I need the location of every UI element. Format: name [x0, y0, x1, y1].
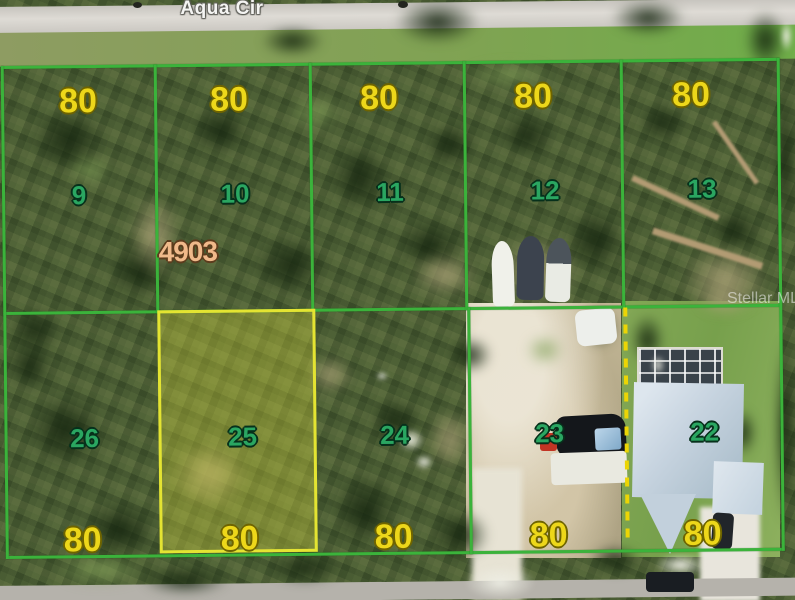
- lot24-number: 24: [380, 422, 409, 448]
- lot11-dimension: 80: [360, 81, 398, 115]
- boundary-line-middle: [3, 304, 782, 315]
- lot22-number: 22: [690, 418, 719, 444]
- boundary-lot11-12: [463, 61, 469, 310]
- lot26-dimension: 80: [64, 523, 102, 557]
- boundary-lot9-10: [154, 64, 160, 313]
- parcel-boundary-overlay: 80 80 80 80 80 9 10 11 12 13 4903 26 25 …: [0, 0, 795, 600]
- parcel-number: 4903: [159, 238, 218, 267]
- lot23-number: 23: [535, 420, 564, 446]
- street-name-label: Aqua Cir: [180, 0, 263, 18]
- lot11-number: 11: [376, 179, 404, 205]
- lot10-number: 10: [220, 180, 249, 206]
- lot23-dimension: 80: [530, 518, 568, 552]
- lot13-number: 13: [687, 176, 716, 202]
- lot25-number: 25: [228, 423, 257, 449]
- boundary-lot12-13: [620, 59, 626, 308]
- lot26-number: 26: [70, 425, 99, 451]
- mls-watermark: Stellar MLS: [727, 290, 795, 308]
- lot9-number: 9: [72, 182, 87, 208]
- boundary-lot10-11: [309, 63, 315, 312]
- boundary-lot23-22-dashed: [623, 307, 629, 545]
- boundary-lot24-23: [467, 307, 473, 554]
- lot12-number: 12: [530, 177, 559, 203]
- lot25-dimension: 80: [221, 521, 259, 555]
- lot24-dimension: 80: [375, 520, 413, 554]
- lot22-dimension: 80: [684, 516, 722, 550]
- lot13-dimension: 80: [672, 78, 710, 112]
- boundary-line-top: [1, 58, 780, 69]
- lot10-dimension: 80: [210, 82, 248, 116]
- lot9-dimension: 80: [59, 84, 97, 118]
- aerial-parcel-map: 80 80 80 80 80 9 10 11 12 13 4903 26 25 …: [0, 0, 795, 600]
- lot12-dimension: 80: [514, 79, 552, 113]
